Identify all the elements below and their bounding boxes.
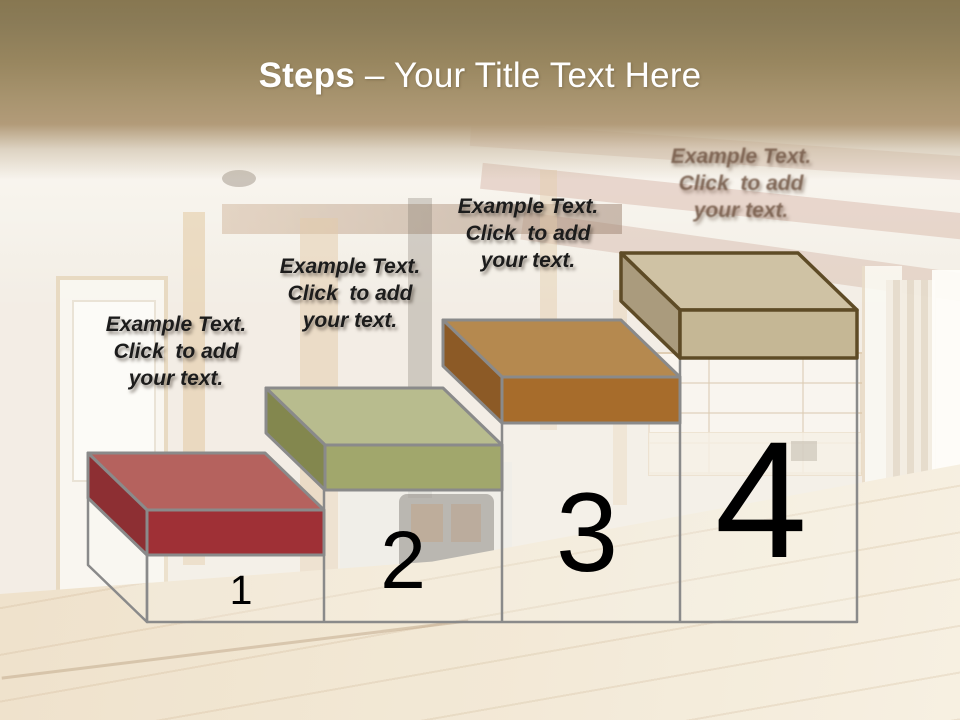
step-1-front-face (147, 510, 324, 555)
step-4-front-face (680, 310, 857, 358)
title-subtitle: – Your Title Text Here (365, 56, 701, 95)
step-2-number: 2 (380, 515, 426, 606)
step-2-placeholder-text[interactable]: Example Text. Click to add your text. (250, 253, 450, 334)
page-title: Steps – Your Title Text Here (0, 56, 960, 100)
title-keyword: Steps (259, 56, 355, 95)
step-3-number: 3 (556, 470, 618, 595)
step-4-number: 4 (715, 408, 807, 593)
step-3-front-face (502, 377, 680, 423)
step-4-placeholder-text[interactable]: Example Text. Click to add your text. (641, 143, 841, 224)
step-1-placeholder-text[interactable]: Example Text. Click to add your text. (76, 311, 276, 392)
step-3-placeholder-text[interactable]: Example Text. Click to add your text. (428, 193, 628, 274)
step-1-number: 1 (230, 567, 253, 613)
slide: Steps – Your Title Text Here (0, 0, 960, 720)
step-2-front-face (325, 445, 502, 490)
